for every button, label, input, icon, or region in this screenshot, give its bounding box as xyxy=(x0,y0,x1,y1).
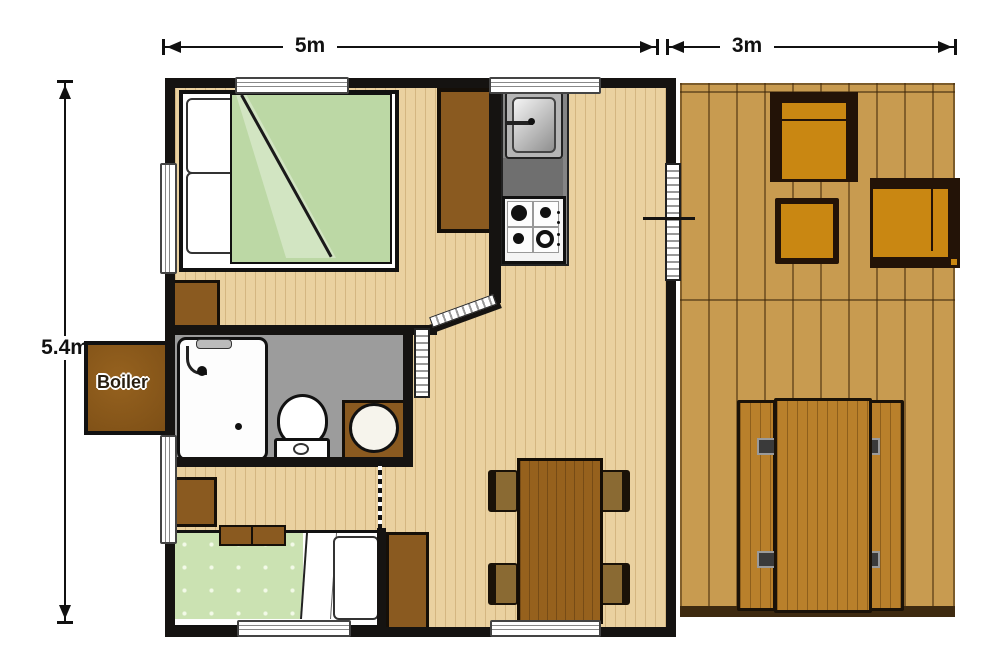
toilet-flush-icon xyxy=(293,443,309,455)
armchair-top-seam xyxy=(782,119,846,121)
dining-chair xyxy=(488,470,518,512)
single-bed-pillow xyxy=(333,536,379,620)
shower-head-icon xyxy=(197,366,207,376)
dining-table xyxy=(517,458,603,624)
chair-back-icon xyxy=(490,565,496,603)
dim-5m-line xyxy=(163,46,659,48)
dim-54m-endbar-bottom xyxy=(57,621,73,624)
living-wardrobe xyxy=(386,532,429,631)
window xyxy=(237,620,351,637)
dim-5m-label: 5m xyxy=(283,34,337,58)
kitchen-stove xyxy=(502,196,566,264)
window xyxy=(160,435,177,544)
deck-side-table xyxy=(775,198,839,264)
bed-cushion xyxy=(219,525,254,546)
deck-edge-right xyxy=(953,83,955,613)
dim-3m-endbar-left xyxy=(666,39,669,55)
wall-right xyxy=(666,78,676,637)
dim-5m-arrow-right xyxy=(640,41,654,53)
bedroom2-nightstand xyxy=(172,477,217,527)
dining-chair xyxy=(488,563,518,605)
deck-door xyxy=(665,163,681,281)
dim-3m-line xyxy=(667,46,957,48)
deck-seam-middle xyxy=(680,299,955,301)
bedroom2-folding-door xyxy=(378,461,382,529)
stove-burner-icon xyxy=(540,207,551,218)
dim-5m-endbar-left xyxy=(162,39,165,55)
armchair-top-arm-right-icon xyxy=(846,95,855,179)
window xyxy=(489,77,601,94)
bedroom1-wardrobe xyxy=(437,88,497,233)
armchair-top-back-icon xyxy=(782,95,846,103)
armchair-right-arm-bottom-icon xyxy=(873,257,951,265)
dim-5m-arrow-left xyxy=(167,41,181,53)
kitchen-faucet-knob xyxy=(528,118,535,125)
picnic-table xyxy=(774,398,872,613)
stove-knob xyxy=(557,243,560,246)
dim-3m-arrow-right xyxy=(938,41,952,53)
dim-5m-endbar-right xyxy=(656,39,659,55)
wall-bedroom1-bottom xyxy=(165,325,437,335)
dim-3m-label: 3m xyxy=(720,34,774,58)
armchair-top-arm-left-icon xyxy=(773,95,782,179)
window xyxy=(490,620,601,637)
bed-cushion xyxy=(251,525,286,546)
stove-knob xyxy=(557,221,560,224)
deck-edge-top xyxy=(680,83,955,85)
stove-burner-icon xyxy=(511,205,527,221)
floor-plan: 5m 3m 5.4m Boiler xyxy=(0,0,1000,668)
dining-chair xyxy=(600,563,630,605)
picnic-bench-left xyxy=(737,400,776,611)
window xyxy=(235,77,349,94)
stove-knob xyxy=(557,211,560,214)
kitchen-sink-basin xyxy=(512,97,556,153)
wall-bathroom-bottom xyxy=(165,457,413,467)
armchair-right-arm-top-icon xyxy=(873,181,951,189)
dim-54m-arrow-up xyxy=(59,85,71,99)
dim-54m-endbar-top xyxy=(57,80,73,83)
dim-3m-endbar-right xyxy=(954,39,957,55)
window xyxy=(160,163,177,274)
kitchen-counter-mid xyxy=(503,158,563,196)
stove-burner-icon xyxy=(536,230,554,248)
boiler-label: Boiler xyxy=(80,372,165,393)
chair-back-icon xyxy=(622,472,628,510)
washbasin-bowl xyxy=(349,403,399,453)
deck-armchair-right xyxy=(870,178,960,268)
wall-bedroom2 xyxy=(377,528,386,637)
deck-armchair-top xyxy=(770,92,858,182)
stove-burner-icon xyxy=(513,233,524,244)
bathroom-door xyxy=(414,328,430,398)
dim-54m-arrow-down xyxy=(59,605,71,619)
wall-left xyxy=(165,78,175,637)
stove-knob xyxy=(557,233,560,236)
chair-back-icon xyxy=(490,472,496,510)
deck-door-threshold xyxy=(643,217,695,220)
picnic-bench-right xyxy=(867,400,904,611)
dim-3m-arrow-left xyxy=(670,41,684,53)
shower-drain-icon xyxy=(235,423,242,430)
armchair-right-back-icon xyxy=(948,181,957,259)
dining-chair xyxy=(600,470,630,512)
wall-kitchen xyxy=(489,78,501,303)
chair-back-icon xyxy=(622,565,628,603)
wall-bathroom-right xyxy=(403,325,413,467)
single-bed-fold xyxy=(300,533,337,619)
armchair-right-seam xyxy=(931,189,933,251)
